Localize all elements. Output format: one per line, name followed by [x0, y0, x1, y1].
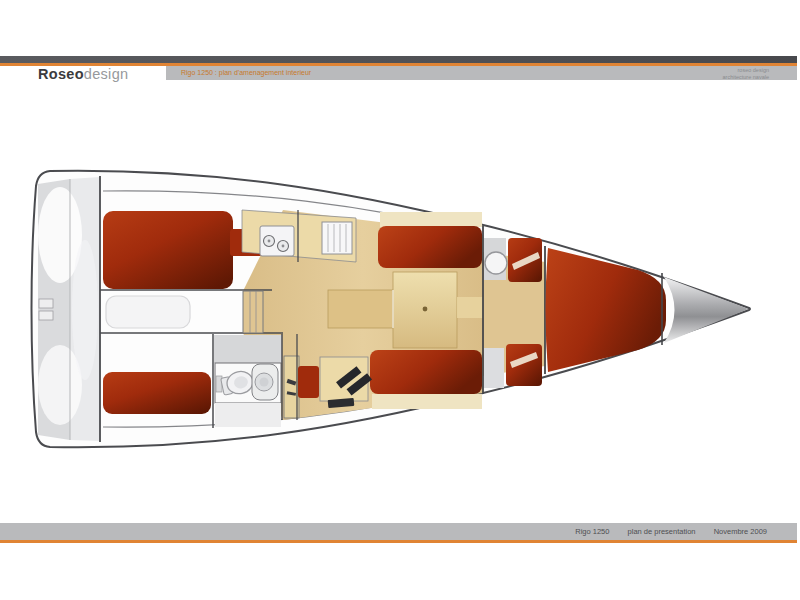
starboard-aft-berth [103, 372, 211, 414]
footer-date: Novembre 2009 [714, 527, 767, 536]
anchor-locker [662, 273, 747, 345]
head-sink [252, 364, 278, 400]
footer-caption: Rigo 1250 plan de presentation Novembre … [0, 523, 797, 540]
companionway-steps [243, 291, 263, 333]
table-leg [423, 307, 428, 312]
boat-plan [0, 0, 800, 600]
port-settee-backrest [380, 212, 482, 227]
engine-hatch [106, 296, 190, 328]
footer-gray-bar: Rigo 1250 plan de presentation Novembre … [0, 523, 797, 540]
deck-hatch [485, 252, 507, 274]
forward-v-berth [546, 248, 667, 372]
port-aft-berth [103, 211, 233, 289]
footer-project: Rigo 1250 [575, 527, 609, 536]
starboard-settee-backrest [372, 394, 482, 409]
stern-ladder [39, 299, 53, 308]
presentation-page: Roseodesign Rigo 1250 : plan d'amenageme… [0, 0, 800, 600]
transom-locker [38, 176, 100, 442]
footer-doc-label: plan de presentation [628, 527, 696, 536]
starboard-settee [370, 350, 482, 394]
footer-accent-line [0, 540, 797, 543]
galley-sink [322, 222, 352, 254]
nav-seat [298, 366, 319, 398]
port-settee [378, 226, 482, 268]
galley-stove [260, 226, 294, 256]
table-leaf [328, 290, 394, 328]
